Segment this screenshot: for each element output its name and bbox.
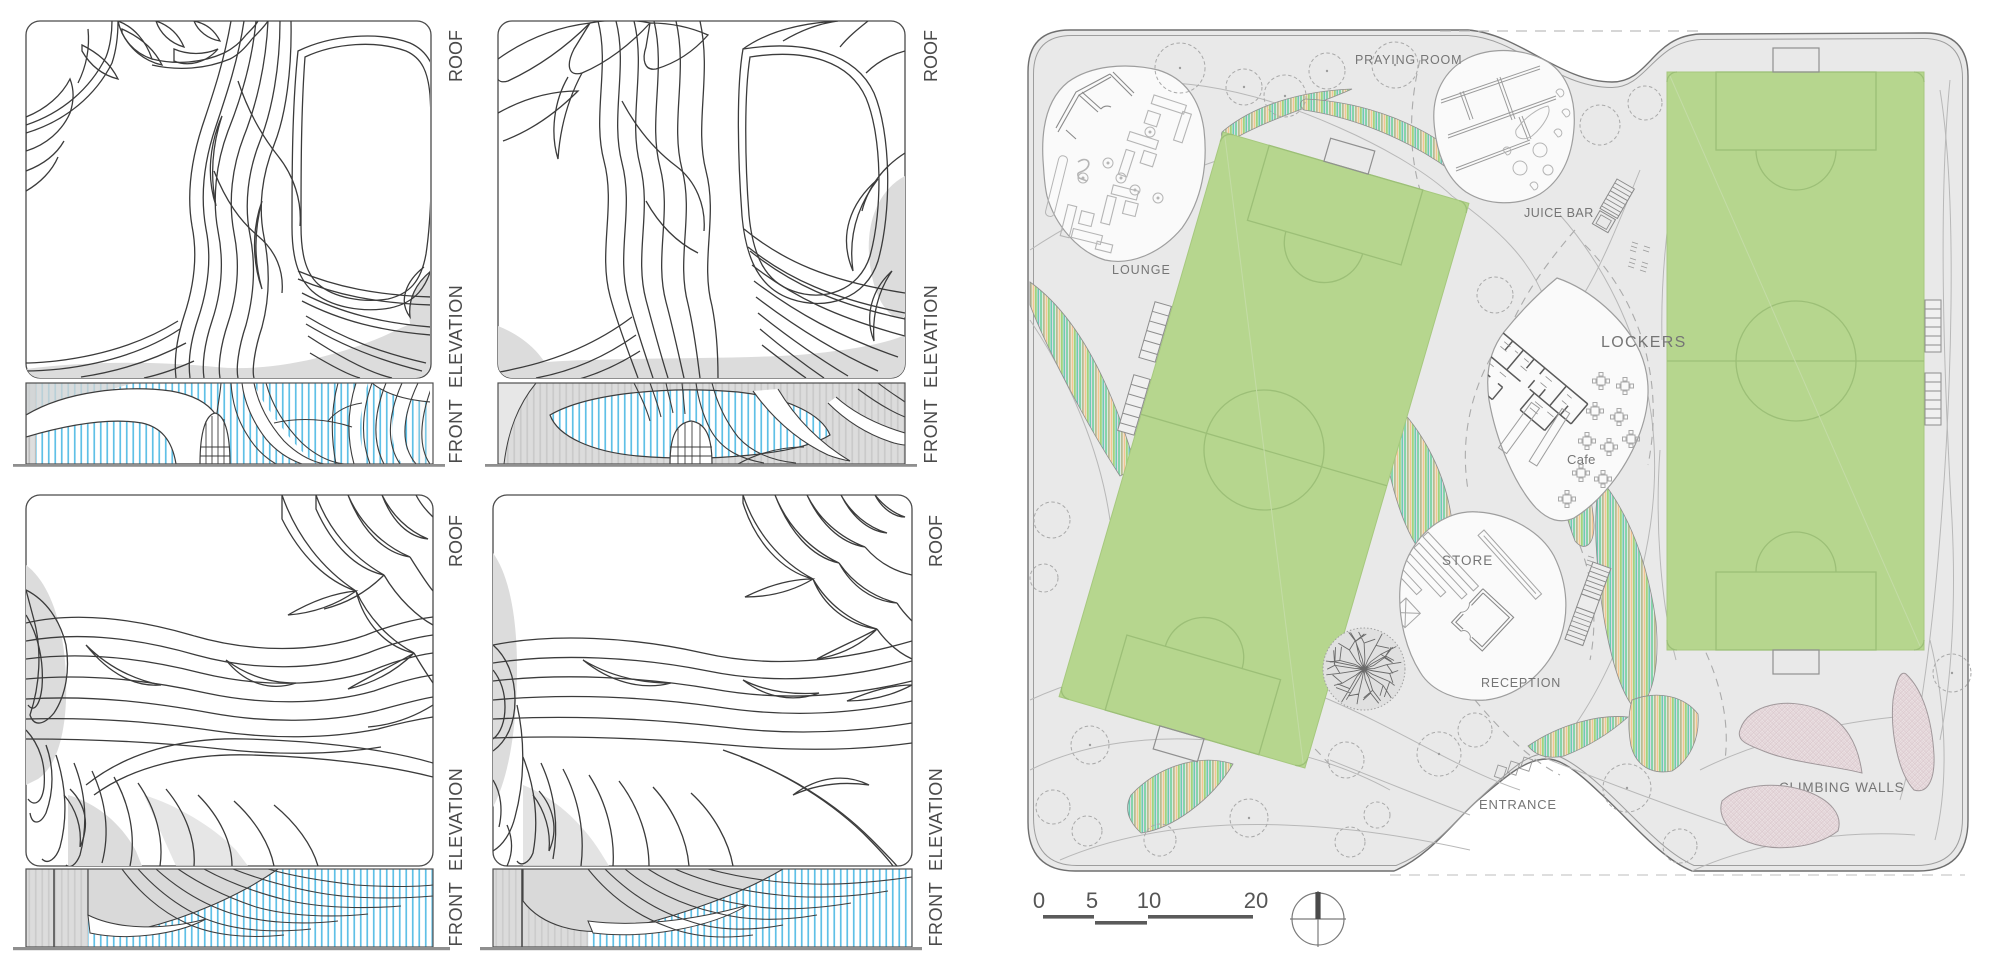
- svg-text:LOCKERS: LOCKERS: [1601, 334, 1687, 351]
- svg-text:ROOF: ROOF: [926, 515, 946, 567]
- svg-text:Cafe: Cafe: [1567, 452, 1596, 467]
- svg-text:FRONT ELEVATION: FRONT ELEVATION: [926, 768, 946, 947]
- svg-text:10: 10: [1137, 888, 1161, 913]
- svg-text:5: 5: [1086, 888, 1098, 913]
- svg-text:PRAYING ROOM: PRAYING ROOM: [1355, 53, 1462, 67]
- svg-text:LOUNGE: LOUNGE: [1112, 263, 1171, 277]
- svg-text:20: 20: [1244, 888, 1268, 913]
- svg-text:ROOF: ROOF: [446, 30, 466, 82]
- svg-text:ENTRANCE: ENTRANCE: [1479, 797, 1557, 812]
- svg-text:ROOF: ROOF: [446, 515, 466, 567]
- svg-text:STORE: STORE: [1442, 553, 1493, 568]
- svg-text:ROOF: ROOF: [921, 30, 941, 82]
- svg-text:FRONT ELEVATION: FRONT ELEVATION: [446, 768, 466, 947]
- svg-text:RECEPTION: RECEPTION: [1481, 676, 1561, 690]
- svg-text:FRONT ELEVATION: FRONT ELEVATION: [921, 285, 941, 464]
- svg-text:0: 0: [1033, 888, 1045, 913]
- svg-text:JUICE BAR: JUICE BAR: [1524, 206, 1594, 220]
- svg-text:FRONT ELEVATION: FRONT ELEVATION: [446, 285, 466, 464]
